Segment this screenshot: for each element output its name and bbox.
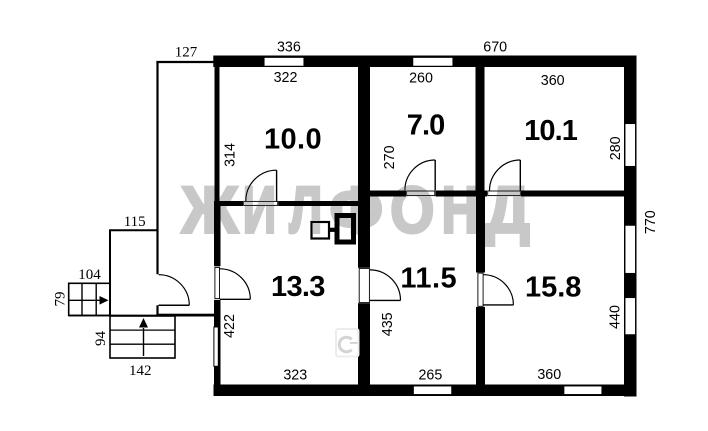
svg-text:Ф: Ф <box>330 173 383 247</box>
svg-text:770: 770 <box>643 210 659 234</box>
svg-text:10.1: 10.1 <box>524 115 578 147</box>
svg-text:115: 115 <box>124 214 146 230</box>
svg-text:15.8: 15.8 <box>525 271 581 303</box>
svg-text:94: 94 <box>93 331 109 347</box>
svg-text:323: 323 <box>283 368 307 384</box>
svg-text:142: 142 <box>129 363 152 379</box>
svg-text:10.0: 10.0 <box>264 123 322 155</box>
svg-text:Н: Н <box>442 173 479 247</box>
svg-text:336: 336 <box>277 40 301 56</box>
svg-text:422: 422 <box>222 314 238 338</box>
svg-text:440: 440 <box>608 305 624 329</box>
svg-text:280: 280 <box>608 136 624 160</box>
svg-text:13.3: 13.3 <box>271 271 325 303</box>
svg-text:104: 104 <box>78 267 101 283</box>
svg-text:Л: Л <box>289 173 322 247</box>
svg-text:Ж: Ж <box>181 173 238 247</box>
svg-text:322: 322 <box>274 70 298 86</box>
svg-text:435: 435 <box>380 312 396 336</box>
svg-text:О: О <box>390 173 434 247</box>
svg-text:260: 260 <box>409 70 433 86</box>
svg-text:270: 270 <box>382 145 398 169</box>
svg-text:79: 79 <box>53 292 69 307</box>
svg-text:360: 360 <box>541 73 565 89</box>
svg-text:Д: Д <box>486 173 530 247</box>
svg-text:7.0: 7.0 <box>407 110 446 142</box>
svg-text:265: 265 <box>418 368 442 384</box>
svg-text:И: И <box>243 173 276 247</box>
svg-text:670: 670 <box>483 40 507 56</box>
svg-text:127: 127 <box>175 44 198 60</box>
svg-text:11.5: 11.5 <box>400 262 456 294</box>
svg-text:360: 360 <box>537 367 561 383</box>
svg-text:314: 314 <box>223 143 239 167</box>
